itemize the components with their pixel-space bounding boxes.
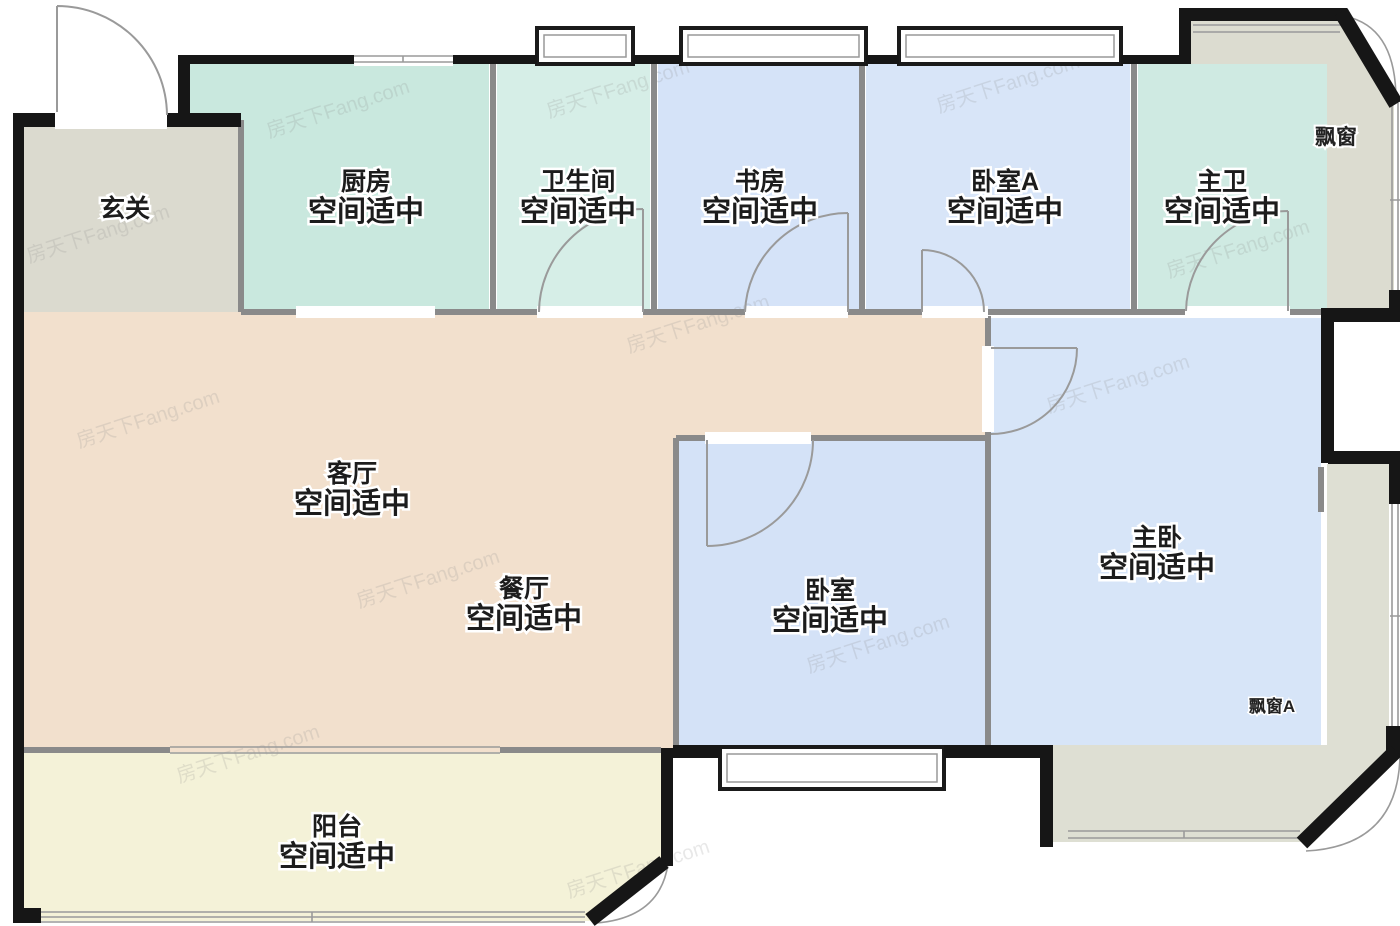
bay-window-right-glass xyxy=(1390,103,1400,298)
label-bathroom-note: 空间适中 xyxy=(520,194,636,228)
study-window-bay xyxy=(681,28,866,64)
label-foyer: 玄关 xyxy=(100,194,150,223)
label-bay-window: 飘窗 xyxy=(1315,125,1357,149)
bedroom-opening xyxy=(705,432,811,444)
label-master-bath-name: 主卫 xyxy=(1197,168,1247,196)
bedroom-a-window-bay xyxy=(899,28,1121,64)
label-master-bedroom-name: 主卧 xyxy=(1132,524,1182,552)
label-living-note: 空间适中 xyxy=(294,486,410,520)
entrance-opening xyxy=(55,109,167,129)
label-balcony-name: 阳台 xyxy=(312,812,362,841)
floor-plan-drawing: 房天下Fang.com 房天下Fang.com 房天下Fang.com 房天下F… xyxy=(0,0,1400,926)
label-bay-window-a: 飘窗A xyxy=(1249,696,1295,716)
wall-top-a xyxy=(178,55,354,64)
room-fills xyxy=(23,20,1400,921)
label-bedroom-note: 空间适中 xyxy=(772,603,888,637)
label-bedroom-a-name: 卧室A xyxy=(971,167,1039,196)
wall-left xyxy=(13,113,24,923)
label-dining-note: 空间适中 xyxy=(466,601,582,635)
wall-top-d xyxy=(866,55,899,64)
master-bedroom-opening xyxy=(982,346,994,432)
label-study-name: 书房 xyxy=(735,167,785,196)
wall-notch-left xyxy=(1321,308,1334,463)
entrance-door-arc xyxy=(57,6,167,115)
label-dining-name: 餐厅 xyxy=(499,575,549,603)
wall-kitchen-connector xyxy=(178,55,190,119)
label-master-bath-note: 空间适中 xyxy=(1164,194,1280,228)
wall-top-c xyxy=(633,55,681,64)
label-bathroom-name: 卫生间 xyxy=(540,168,615,196)
floor-plan: 房天下Fang.com 房天下Fang.com 房天下Fang.com 房天下F… xyxy=(0,0,1400,926)
label-living-name: 客厅 xyxy=(327,459,377,488)
bay-window-a-strip xyxy=(1327,464,1389,752)
label-bedroom-name: 卧室 xyxy=(805,576,855,605)
wall-bedroom-bottom-left xyxy=(673,745,720,758)
kitchen-opening xyxy=(296,306,435,318)
wall-foyer-top-left xyxy=(13,113,57,127)
bathroom-window-bay xyxy=(537,28,633,64)
side-strip-glass xyxy=(1390,501,1400,730)
wall-bedroom-bottom-right xyxy=(944,745,987,758)
label-kitchen-name: 厨房 xyxy=(341,167,391,196)
study-opening xyxy=(745,306,848,318)
wall-balcony-corner-foot xyxy=(13,908,41,923)
bathroom-opening xyxy=(537,306,643,318)
master-bath-opening xyxy=(1185,306,1290,318)
label-bedroom-a-note: 空间适中 xyxy=(947,194,1063,228)
wall-top-b xyxy=(453,55,537,64)
wall-bay-a-left xyxy=(1040,745,1053,847)
label-study-note: 空间适中 xyxy=(702,194,818,228)
bedroom-a-opening xyxy=(922,306,988,318)
wall-balcony-right xyxy=(661,748,673,866)
wall-bay-top xyxy=(1179,8,1347,21)
label-kitchen-note: 空间适中 xyxy=(308,194,424,228)
label-master-bedroom-note: 空间适中 xyxy=(1099,550,1215,584)
wall-strip-top-right xyxy=(1389,451,1400,504)
label-balcony-note: 空间适中 xyxy=(279,839,395,873)
